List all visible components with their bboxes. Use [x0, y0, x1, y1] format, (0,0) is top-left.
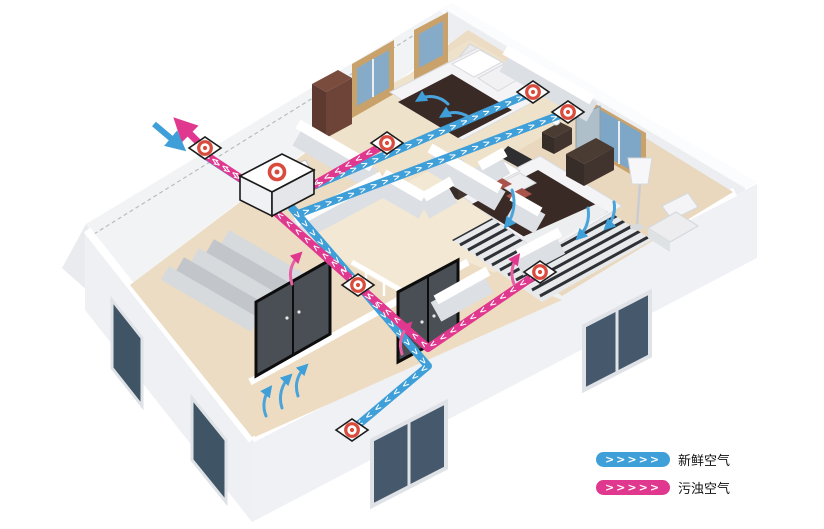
fresh-air-arrow-icon: >>>>> — [596, 452, 670, 467]
legend-row-polluted-air: >>>>> 污浊空气 — [596, 478, 730, 497]
legend: >>>>> 新鲜空气 >>>>> 污浊空气 — [596, 450, 730, 497]
legend-row-fresh-air: >>>>> 新鲜空气 — [596, 450, 730, 469]
legend-label-polluted-air: 污浊空气 — [678, 478, 730, 497]
polluted-air-arrow-icon: >>>>> — [596, 480, 670, 495]
ventilation-floorplan-diagram: >>>>>>>>>>>>>>>>>>>>>>>>>>>>>>>>>>>>>>>>… — [0, 0, 824, 529]
legend-label-fresh-air: 新鲜空气 — [678, 450, 730, 469]
fresh-air-intake-arrow-icon — [154, 124, 180, 146]
